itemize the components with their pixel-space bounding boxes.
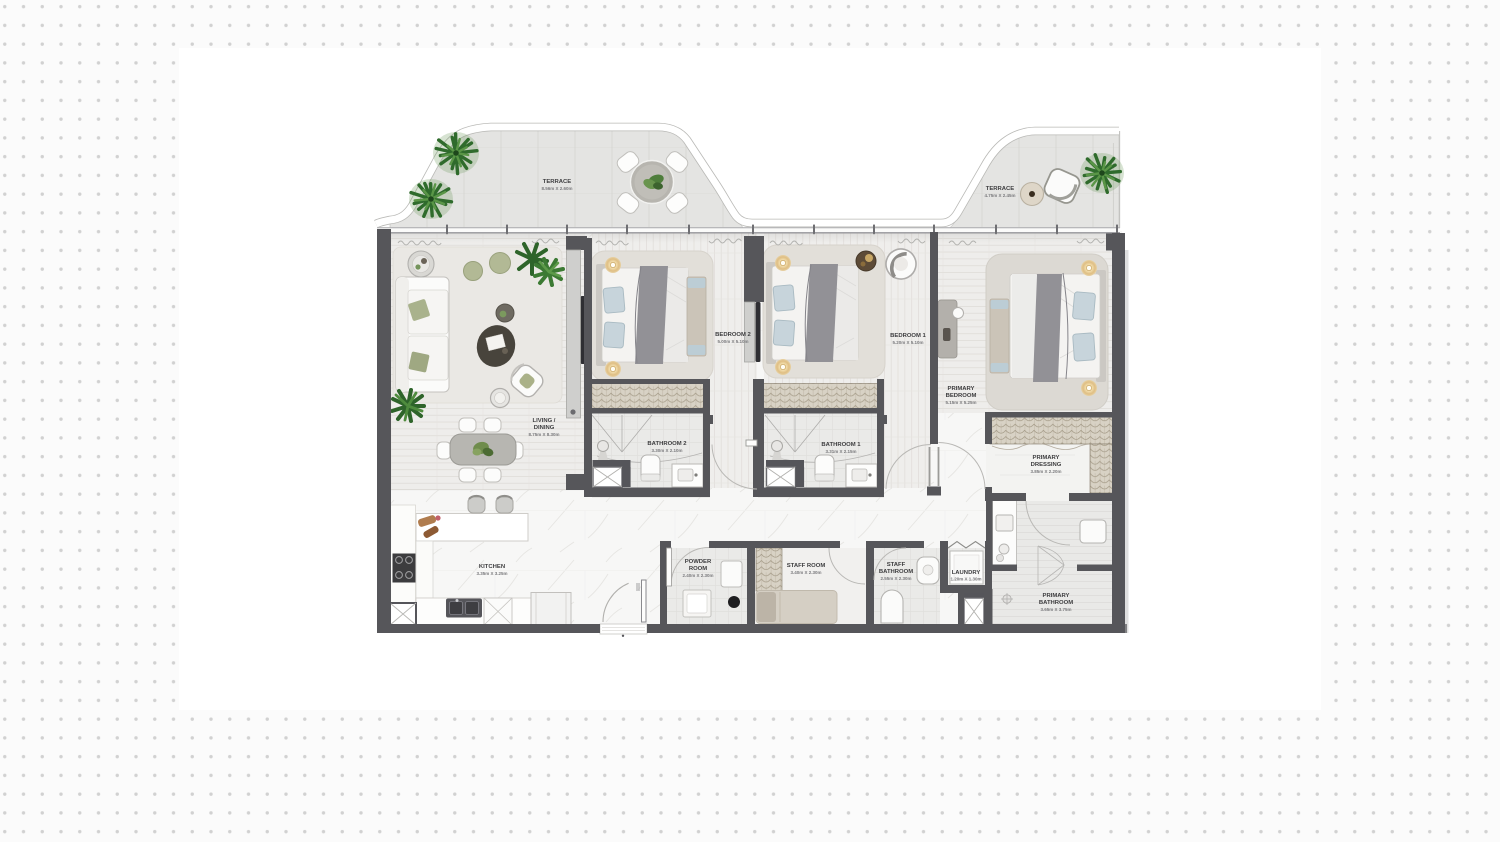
svg-text:3.31m X 2.15m: 3.31m X 2.15m: [825, 449, 856, 454]
svg-text:BEDROOM 1: BEDROOM 1: [890, 333, 926, 339]
svg-text:BEDROOM 2: BEDROOM 2: [715, 332, 751, 338]
svg-text:PRIMARY: PRIMARY: [1043, 593, 1070, 599]
svg-text:PRIMARY: PRIMARY: [948, 386, 975, 392]
svg-text:3.35m X 3.25m: 3.35m X 3.25m: [476, 571, 507, 576]
svg-text:ROOM: ROOM: [689, 566, 707, 572]
svg-text:STAFF ROOM: STAFF ROOM: [787, 563, 826, 569]
svg-text:5.15m X 5.25m: 5.15m X 5.25m: [945, 400, 976, 405]
svg-text:LIVING /: LIVING /: [533, 418, 556, 424]
svg-text:3.65m X 3.75m: 3.65m X 3.75m: [1040, 607, 1071, 612]
svg-text:3.30m X 2.10m: 3.30m X 2.10m: [651, 448, 682, 453]
svg-text:LAUNDRY: LAUNDRY: [952, 570, 981, 576]
svg-text:DRESSING: DRESSING: [1031, 462, 1062, 468]
svg-text:BATHROOM 1: BATHROOM 1: [821, 442, 861, 448]
svg-text:5.00m X 5.10m: 5.00m X 5.10m: [717, 339, 748, 344]
svg-text:8.56m X 2.60m: 8.56m X 2.60m: [541, 186, 572, 191]
svg-text:TERRACE: TERRACE: [543, 179, 572, 185]
svg-text:8.75m X 8.30m: 8.75m X 8.30m: [528, 432, 559, 437]
svg-text:POWDER: POWDER: [685, 559, 712, 565]
svg-text:BATHROOM: BATHROOM: [879, 569, 913, 575]
svg-text:BEDROOM: BEDROOM: [946, 393, 977, 399]
svg-text:2.40m X 2.30m: 2.40m X 2.30m: [682, 573, 713, 578]
svg-text:3.85m X 2.20m: 3.85m X 2.20m: [1030, 469, 1061, 474]
svg-text:BATHROOM: BATHROOM: [1039, 600, 1073, 606]
svg-text:KITCHEN: KITCHEN: [479, 564, 505, 570]
svg-text:STAFF: STAFF: [887, 562, 906, 568]
svg-text:DINING: DINING: [534, 425, 555, 431]
svg-text:PRIMARY: PRIMARY: [1033, 455, 1060, 461]
svg-text:3.40m X 2.30m: 3.40m X 2.30m: [790, 570, 821, 575]
svg-text:5.20m X 5.10m: 5.20m X 5.10m: [892, 340, 923, 345]
svg-text:4.75m X 2.45m: 4.75m X 2.45m: [984, 193, 1015, 198]
svg-text:BATHROOM 2: BATHROOM 2: [647, 441, 687, 447]
svg-text:2.55m X 2.30m: 2.55m X 2.30m: [880, 576, 911, 581]
svg-text:TERRACE: TERRACE: [986, 186, 1015, 192]
svg-text:1.20m X 1.30m: 1.20m X 1.30m: [950, 577, 981, 582]
